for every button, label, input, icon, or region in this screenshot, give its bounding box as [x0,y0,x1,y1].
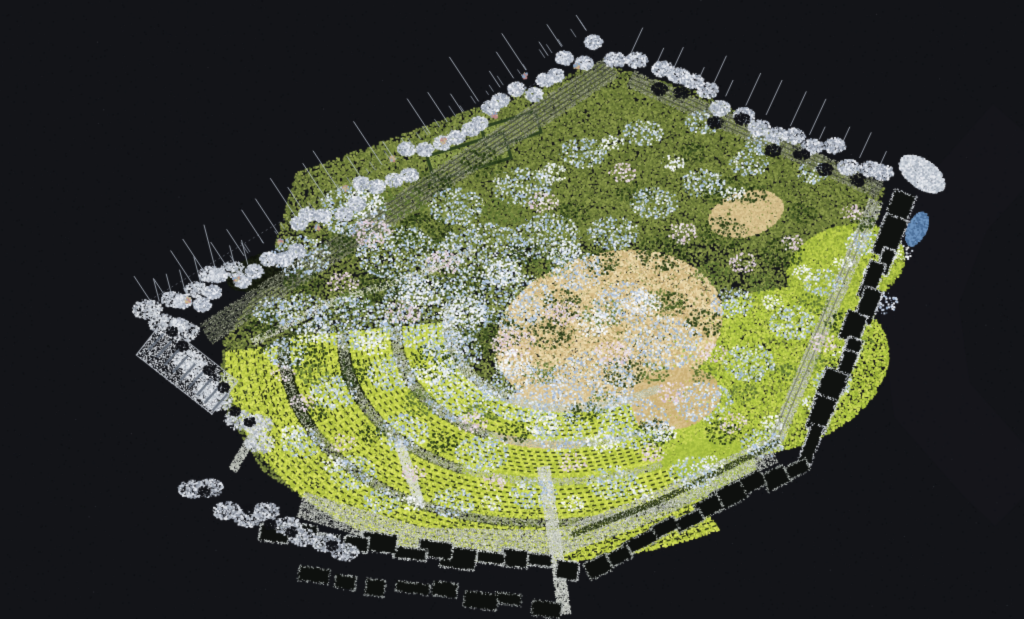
point-cloud-image [0,0,1024,619]
lidar-scan-figure [0,0,1024,619]
